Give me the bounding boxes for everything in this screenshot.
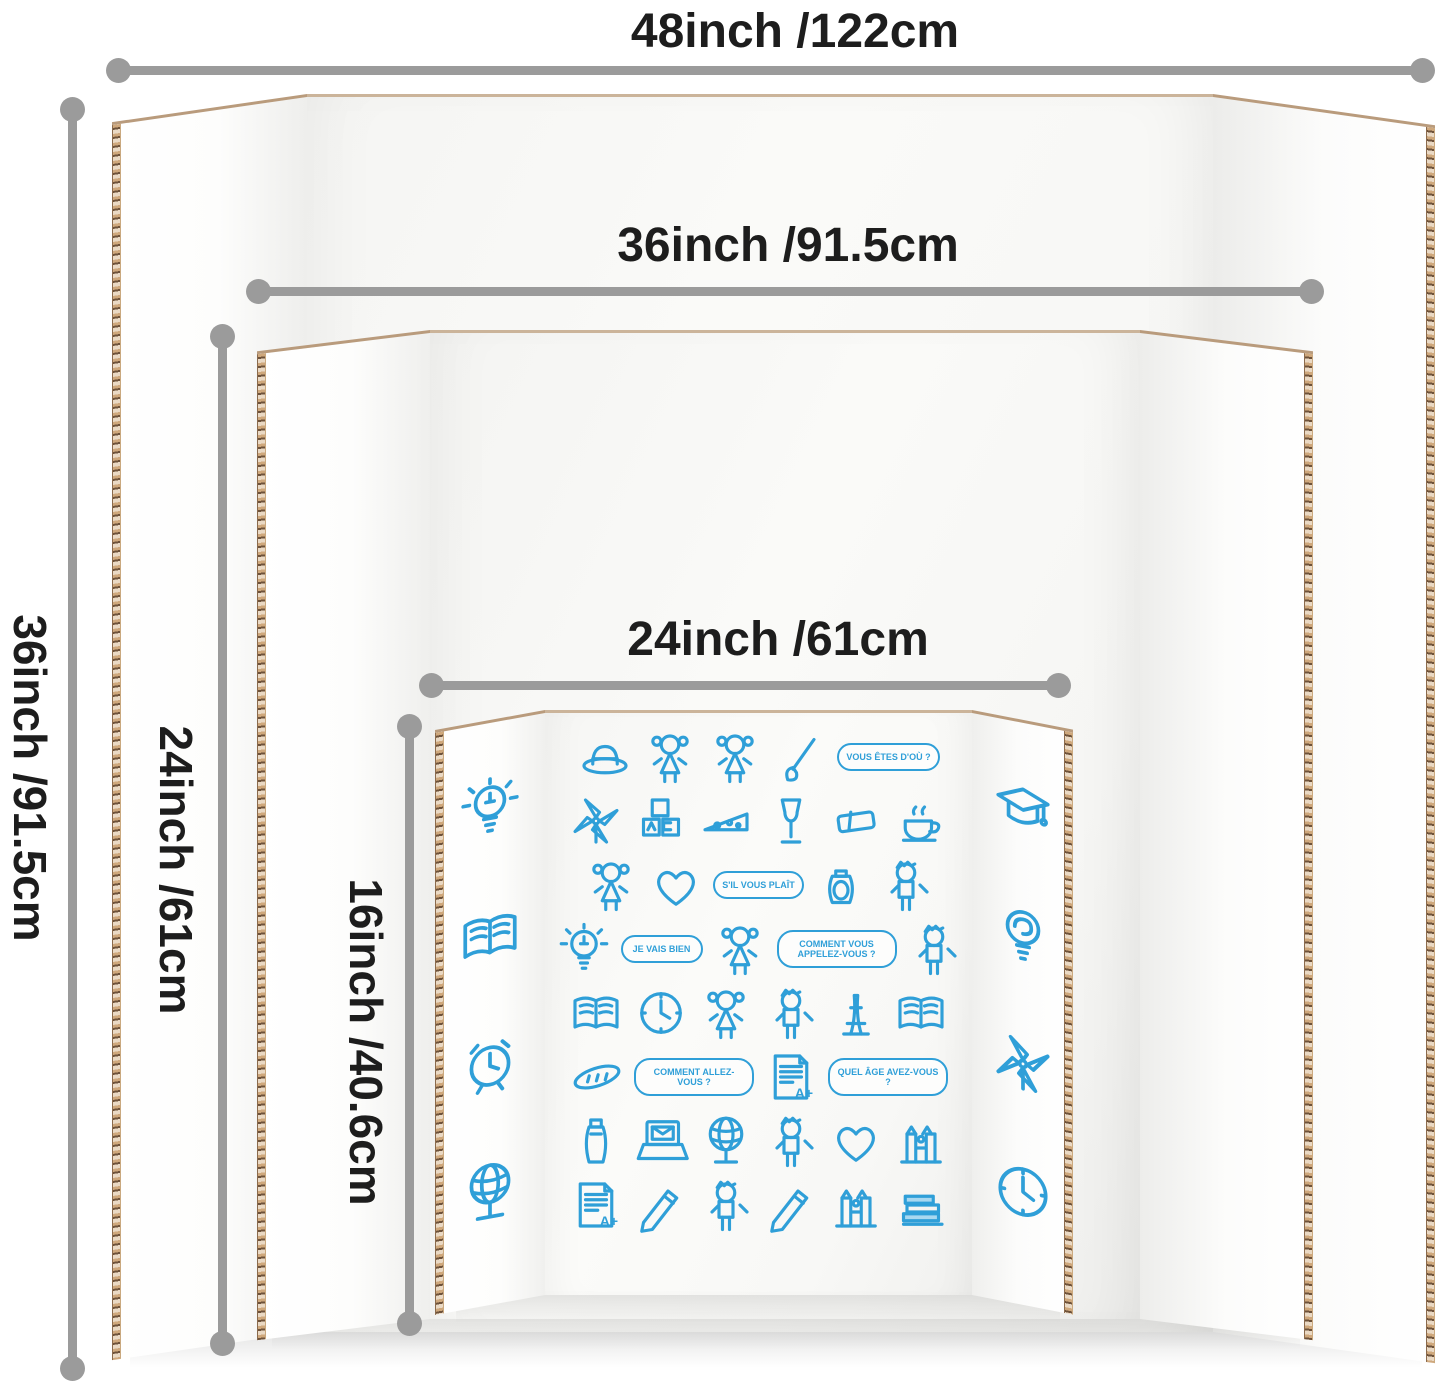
boy-icon <box>878 857 934 913</box>
product-size-diagram: VOUS ÊTES D'OÙ ?S'IL VOUS PLAÎTJE VAIS B… <box>0 0 1445 1385</box>
brain-bulb-icon <box>990 896 1056 975</box>
boy-icon <box>763 1113 819 1169</box>
cardboard-corrugated-edge <box>112 124 121 1360</box>
cardboard-corrugated-edge <box>257 353 266 1340</box>
hat-icon <box>577 729 633 785</box>
width-48-label: 48inch /122cm <box>631 4 959 59</box>
cathedral-icon <box>893 1113 949 1169</box>
wine-glass-icon <box>763 793 819 849</box>
girl-icon <box>583 857 639 913</box>
cardboard-corrugated-edge <box>1304 353 1313 1340</box>
cathedral-icon <box>828 1177 884 1233</box>
speech-bubble: QUEL ÂGE AVEZ-VOUS ? <box>828 1058 948 1097</box>
globe-icon <box>457 1153 523 1231</box>
bulb-icon <box>556 921 612 977</box>
right-flap-doodles <box>972 713 1073 1235</box>
medium-board-right-flap <box>1140 330 1313 1340</box>
height-16-dimension-line <box>405 725 414 1325</box>
width-24-label: 24inch /61cm <box>627 612 929 667</box>
cardboard-corrugated-edge <box>1426 127 1435 1363</box>
boy-icon <box>906 921 962 977</box>
height-36-label: 36inch /91.5cm <box>3 614 57 941</box>
paper-icon: A+ <box>568 1177 624 1233</box>
open-book-icon <box>457 897 523 975</box>
speech-bubble: VOUS ÊTES D'OÙ ? <box>837 743 939 771</box>
teacup-icon <box>893 793 949 849</box>
height-24-dimension-line <box>218 335 227 1345</box>
pencil-icon <box>763 1177 819 1233</box>
width-36-dimension-line <box>257 287 1313 296</box>
jar-icon <box>813 857 869 913</box>
cheese-icon <box>698 793 754 849</box>
width-36-label: 36inch /91.5cm <box>617 218 959 273</box>
paintbrush-icon <box>772 729 828 785</box>
alarm-clock-icon <box>457 1025 523 1103</box>
girl-icon <box>712 921 768 977</box>
girl-icon <box>707 729 763 785</box>
left-flap-doodles <box>435 713 545 1235</box>
graduation-cap-icon <box>990 768 1056 847</box>
speech-bubble: S'IL VOUS PLAÎT <box>713 871 803 899</box>
bottle-icon <box>568 1113 624 1169</box>
open-book-icon <box>568 985 624 1041</box>
paper-icon: A+ <box>763 1049 819 1105</box>
heart-icon <box>828 1113 884 1169</box>
doodle-artwork: VOUS ÊTES D'OÙ ?S'IL VOUS PLAÎTJE VAIS B… <box>555 729 962 1287</box>
width-48-dimension-line <box>117 66 1424 75</box>
baguette-icon <box>569 1049 625 1105</box>
heart-icon <box>648 857 704 913</box>
small-board-left-flap <box>435 710 545 1315</box>
boy-icon <box>763 985 819 1041</box>
bulb-icon <box>457 769 523 847</box>
pinwheel-icon <box>990 1024 1056 1103</box>
speech-bubble: COMMENT VOUS APPELEZ-VOUS ? <box>777 930 897 969</box>
speech-bubble: JE VAIS BIEN <box>621 935 703 963</box>
speech-bubble: COMMENT ALLEZ-VOUS ? <box>634 1058 754 1097</box>
pencil-icon <box>633 1177 689 1233</box>
clock-icon <box>633 985 689 1041</box>
height-24-label: 24inch /61cm <box>149 726 203 1015</box>
eraser-icon <box>828 793 884 849</box>
girl-icon <box>642 729 698 785</box>
girl-icon <box>698 985 754 1041</box>
pinwheel-icon <box>568 793 624 849</box>
height-16-label: 16inch /40.6cm <box>339 878 393 1205</box>
boy-icon <box>698 1177 754 1233</box>
abc-blocks-icon <box>633 793 689 849</box>
height-36-dimension-line <box>68 108 77 1370</box>
clock-icon <box>990 1152 1056 1231</box>
small-board-center-panel: VOUS ÊTES D'OÙ ?S'IL VOUS PLAÎTJE VAIS B… <box>545 710 972 1295</box>
width-24-dimension-line <box>430 681 1060 690</box>
eiffel-tower-icon <box>828 985 884 1041</box>
books-stack-icon <box>893 1177 949 1233</box>
globe-icon <box>698 1113 754 1169</box>
small-board-right-flap <box>972 710 1073 1315</box>
laptop-mail-icon <box>633 1113 689 1169</box>
open-book-icon <box>893 985 949 1041</box>
